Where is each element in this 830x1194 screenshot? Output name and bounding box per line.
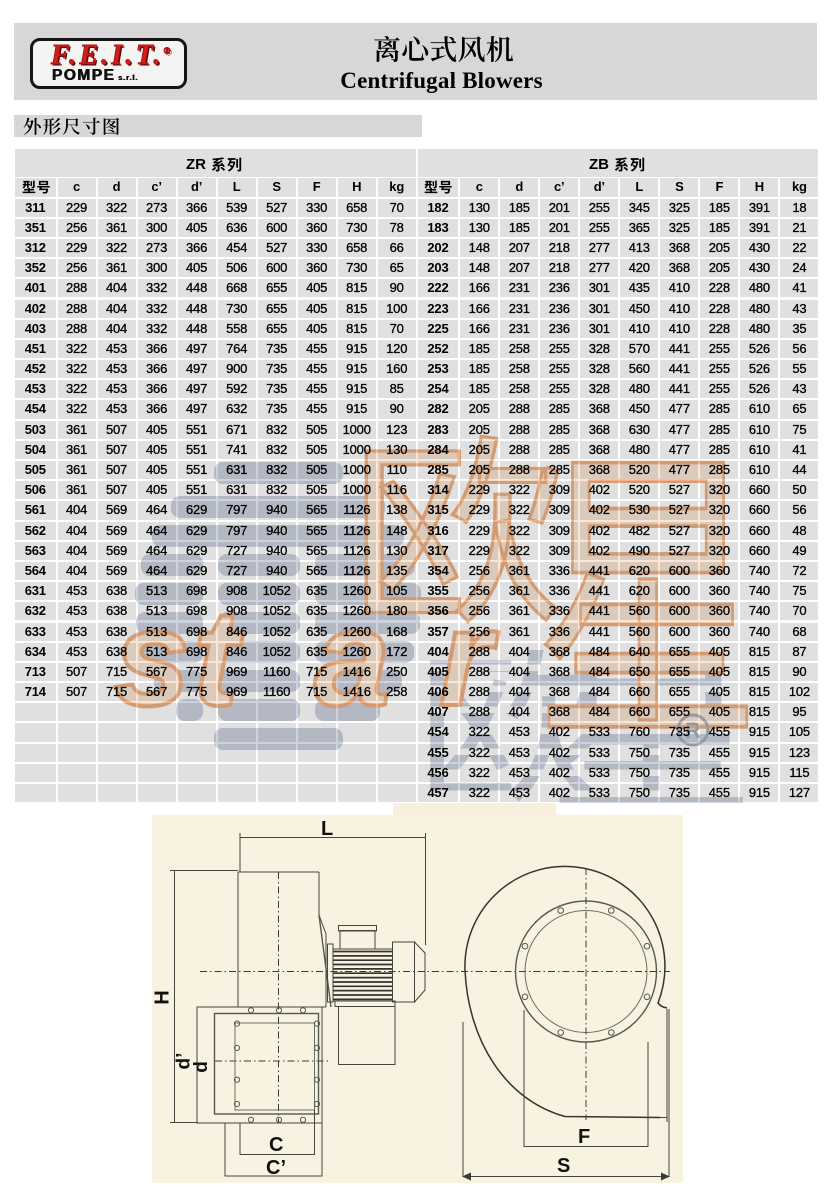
- svg-text:s: s: [114, 582, 190, 735]
- svg-text:t: t: [193, 582, 244, 735]
- svg-text:R: R: [685, 718, 701, 743]
